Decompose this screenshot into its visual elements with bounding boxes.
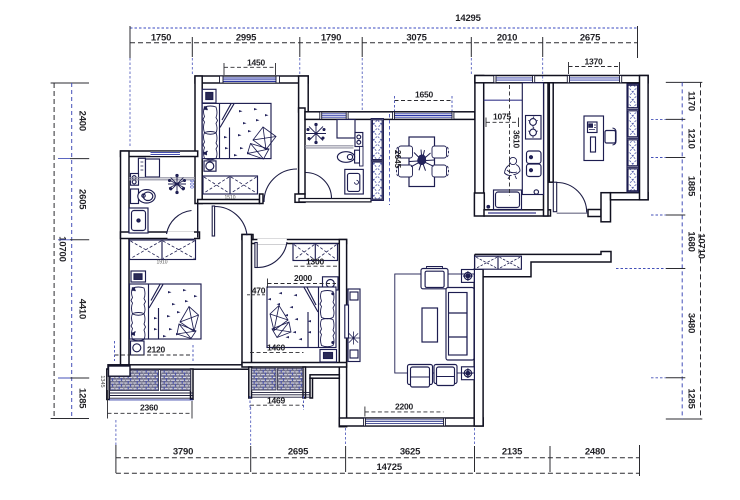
svg-text:2645: 2645 [393, 150, 403, 169]
svg-text:1680: 1680 [686, 231, 697, 251]
svg-text:1170: 1170 [686, 91, 697, 111]
svg-text:4410: 4410 [77, 299, 88, 319]
svg-text:2120: 2120 [147, 345, 166, 355]
svg-text:1075: 1075 [493, 112, 512, 122]
svg-text:2675: 2675 [580, 33, 601, 44]
svg-text:3610: 3610 [512, 130, 522, 149]
svg-text:1300: 1300 [306, 257, 325, 267]
svg-text:2695: 2695 [288, 447, 309, 458]
svg-text:2480: 2480 [585, 447, 605, 458]
svg-text:1285: 1285 [686, 388, 697, 409]
svg-text:2605: 2605 [77, 189, 88, 210]
svg-text:2200: 2200 [395, 402, 414, 412]
svg-text:1910: 1910 [156, 260, 167, 266]
svg-text:3075: 3075 [406, 33, 427, 44]
svg-text:1370: 1370 [584, 57, 603, 67]
svg-text:900: 900 [188, 179, 194, 188]
svg-text:1790: 1790 [321, 33, 341, 44]
svg-text:1210: 1210 [686, 128, 697, 148]
svg-text:1345: 1345 [99, 375, 105, 387]
svg-text:2000: 2000 [294, 273, 313, 283]
svg-text:3480: 3480 [686, 313, 697, 333]
svg-text:1650: 1650 [415, 90, 434, 100]
svg-text:2400: 2400 [77, 111, 88, 131]
svg-text:1750: 1750 [151, 33, 171, 44]
svg-text:14725: 14725 [377, 462, 403, 473]
svg-text:1450: 1450 [247, 58, 266, 68]
svg-text:2010: 2010 [497, 33, 517, 44]
svg-text:3790: 3790 [173, 447, 193, 458]
svg-text:2360: 2360 [140, 403, 159, 413]
svg-text:1460: 1460 [267, 343, 286, 353]
svg-text:470: 470 [252, 286, 266, 296]
svg-text:14295: 14295 [455, 13, 481, 24]
svg-text:1285: 1285 [77, 388, 88, 409]
svg-text:1885: 1885 [686, 176, 697, 197]
svg-text:1469: 1469 [267, 396, 286, 406]
svg-text:3625: 3625 [400, 447, 421, 458]
svg-text:2995: 2995 [236, 33, 257, 44]
svg-text:2135: 2135 [502, 447, 523, 458]
svg-text:1510: 1510 [224, 195, 235, 201]
